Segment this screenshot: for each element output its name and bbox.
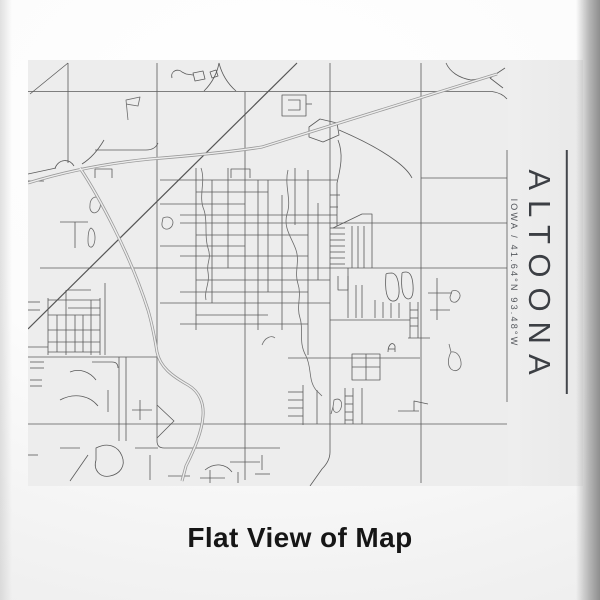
water-layer-path xyxy=(448,352,461,371)
city-title: ALTOONA xyxy=(522,169,556,384)
roads-layer-path xyxy=(386,273,400,301)
roads-layer-path xyxy=(70,370,96,380)
roads-layer-path xyxy=(205,465,232,472)
roads-layer-path xyxy=(157,63,280,448)
roads-layer-path xyxy=(337,140,341,183)
water-layer-path xyxy=(262,337,275,345)
roads-layer-path xyxy=(55,161,74,168)
water-layer-path xyxy=(88,228,95,247)
side-text-rotated: ALTOONA IOWA / 41.64°N 93.48°W xyxy=(508,112,568,432)
water-layer-path xyxy=(331,407,333,414)
roads-layer-path xyxy=(490,78,503,88)
roads-layer-path xyxy=(157,405,174,438)
roads-layer-path xyxy=(172,70,186,78)
roads-layer-path xyxy=(186,74,193,75)
highways-layer-inner xyxy=(28,74,497,481)
water-layer-path xyxy=(286,170,322,396)
product-mockup-page: ALTOONA IOWA / 41.64°N 93.48°W Flat View… xyxy=(0,0,600,600)
roads-layer-path xyxy=(95,143,158,150)
roads-layer-path xyxy=(30,63,68,94)
roads-layer-path xyxy=(388,344,395,352)
roads-layer-path xyxy=(193,71,205,81)
map-svg xyxy=(28,60,508,486)
roads-layer-path xyxy=(231,169,250,178)
roads-layer-path xyxy=(70,455,88,481)
roads-layer-path xyxy=(95,169,112,178)
water-layer-path xyxy=(333,399,342,412)
roads-layer-path xyxy=(288,100,300,110)
roads-layer-path xyxy=(28,168,56,174)
highways-layer-inner-path xyxy=(28,74,497,183)
highways-layer xyxy=(28,74,497,481)
roads-layer-path xyxy=(92,362,118,368)
roads-layer-path xyxy=(338,276,348,290)
roads-layer-path xyxy=(60,396,98,406)
water-layer-path xyxy=(450,291,460,303)
roads-layer-path xyxy=(219,63,236,91)
water-layer-path xyxy=(162,217,173,229)
roads-layer-path xyxy=(82,140,104,164)
water-layer-path xyxy=(449,344,451,352)
coordinates-subtitle: IOWA / 41.64°N 93.48°W xyxy=(508,199,519,348)
roads-layer-path xyxy=(282,95,306,116)
roads-layer-path xyxy=(402,272,414,299)
page-right-curl-shade xyxy=(576,0,600,600)
roads-layer-path xyxy=(339,130,412,178)
roads-layer xyxy=(28,63,507,486)
water-layer-path xyxy=(126,97,140,120)
roads-layer-path xyxy=(95,445,123,476)
accent-line xyxy=(566,150,568,394)
caption-text: Flat View of Map xyxy=(0,522,600,554)
roads-layer-path xyxy=(333,214,372,228)
page-left-edge-shade xyxy=(0,0,12,600)
